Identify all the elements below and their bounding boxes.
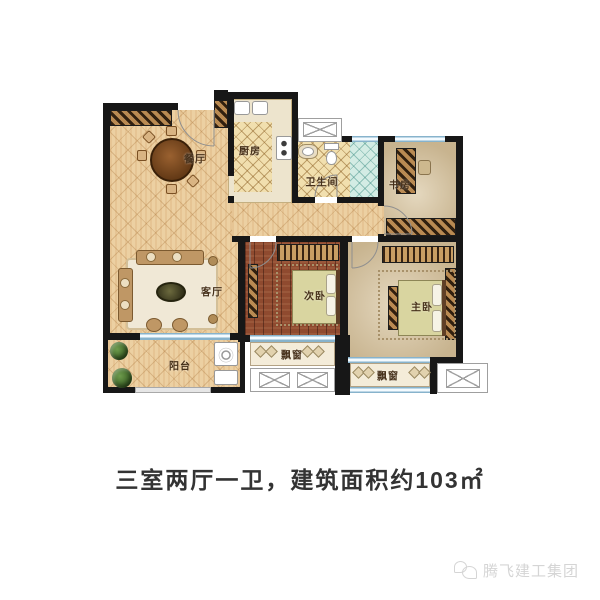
wall xyxy=(335,335,350,395)
wall xyxy=(103,387,135,393)
balcony-door-window xyxy=(140,333,230,340)
pillow xyxy=(326,296,336,316)
bay2-outer-window xyxy=(350,387,430,393)
entry-cabinet xyxy=(110,110,172,126)
wall xyxy=(224,92,298,99)
room-label-second-bedroom: 次卧 xyxy=(304,288,326,303)
study-chair xyxy=(418,160,431,175)
sofa-cushion xyxy=(120,300,130,310)
washing-machine xyxy=(214,342,238,366)
wall xyxy=(292,197,315,203)
second-bedroom-dresser xyxy=(248,264,258,318)
sofa-seat xyxy=(172,318,188,332)
sofa-seat xyxy=(146,318,162,332)
wall xyxy=(103,340,108,393)
dining-chair xyxy=(137,150,147,161)
pillow xyxy=(432,284,442,306)
second-bedroom-door-arc xyxy=(250,242,277,269)
sofa-cushion xyxy=(120,278,130,288)
watermark: 腾飞建工集团 xyxy=(454,559,579,581)
floor-plan: 餐厅 厨房 卫生间 书房 客厅 次卧 主卧 阳台 飘窗 飘窗 xyxy=(100,88,492,402)
wall xyxy=(378,236,456,242)
wall xyxy=(103,103,110,340)
master-door-arc xyxy=(352,242,379,269)
x-symbol xyxy=(297,372,328,388)
toilet-bowl xyxy=(326,151,337,165)
caption-text: 三室两厅一卫，建筑面积约103㎡ xyxy=(0,461,600,495)
wall xyxy=(228,196,234,203)
room-label-bathroom: 卫生间 xyxy=(306,174,339,189)
side-stool xyxy=(208,314,218,324)
sofa-side xyxy=(118,268,133,322)
kitchen-sink xyxy=(252,101,268,115)
room-label-dining: 餐厅 xyxy=(184,151,206,166)
side-stool xyxy=(208,256,218,266)
master-bench xyxy=(388,286,398,330)
sofa-cushion xyxy=(146,252,156,262)
shower-floor xyxy=(350,142,380,197)
study-window xyxy=(395,136,445,142)
bay1-window xyxy=(250,335,335,342)
balcony-railing xyxy=(135,387,211,393)
dining-chair xyxy=(166,126,177,136)
wall xyxy=(292,93,298,203)
wall xyxy=(238,242,245,342)
wall xyxy=(230,333,238,340)
second-bed-headboard xyxy=(336,270,340,324)
sofa-cushion xyxy=(172,252,182,262)
entry-side-cabinet xyxy=(214,100,228,128)
room-label-bay-window-master: 飘窗 xyxy=(377,368,399,383)
x-symbol xyxy=(259,372,290,388)
stove xyxy=(276,136,292,160)
wall xyxy=(337,197,380,203)
coffee-table xyxy=(156,282,186,302)
chat-bubble-large xyxy=(462,566,477,579)
dining-chair xyxy=(166,184,177,194)
wall xyxy=(430,363,437,394)
balcony-cabinet xyxy=(214,370,238,385)
kitchen-sink xyxy=(234,101,250,115)
duct-shaft-box xyxy=(298,118,342,142)
pillow xyxy=(432,310,442,332)
room-label-master-bedroom: 主卧 xyxy=(411,299,433,314)
bathroom-sink-basin xyxy=(302,147,314,156)
x-symbol xyxy=(446,369,480,388)
study-door-arc xyxy=(384,206,413,235)
wall xyxy=(240,340,245,387)
master-wardrobe xyxy=(382,246,454,263)
ac-platform-box xyxy=(437,363,488,393)
watermark-brand: 腾飞建工集团 xyxy=(483,560,579,581)
x-symbol xyxy=(303,122,337,137)
room-label-study: 书房 xyxy=(389,177,411,192)
plant xyxy=(112,368,132,388)
master-bed-headboard xyxy=(442,280,446,336)
wall xyxy=(211,387,245,393)
room-label-kitchen: 厨房 xyxy=(239,143,261,158)
shower-window xyxy=(352,136,378,142)
room-label-bay-window-second: 飘窗 xyxy=(281,347,303,362)
wall xyxy=(378,142,384,206)
wall xyxy=(103,103,178,110)
bay1-base-box xyxy=(250,368,335,392)
plant xyxy=(110,342,128,360)
pillow xyxy=(326,274,336,294)
wall xyxy=(456,136,463,363)
room-label-living: 客厅 xyxy=(201,284,223,299)
hallway-floor xyxy=(232,203,384,236)
toilet xyxy=(324,143,339,150)
chat-bubbles-icon xyxy=(454,559,478,581)
wall xyxy=(110,333,140,340)
second-bedroom-wardrobe xyxy=(277,244,339,261)
room-label-balcony: 阳台 xyxy=(169,358,191,373)
entry-door-arc xyxy=(178,110,215,147)
